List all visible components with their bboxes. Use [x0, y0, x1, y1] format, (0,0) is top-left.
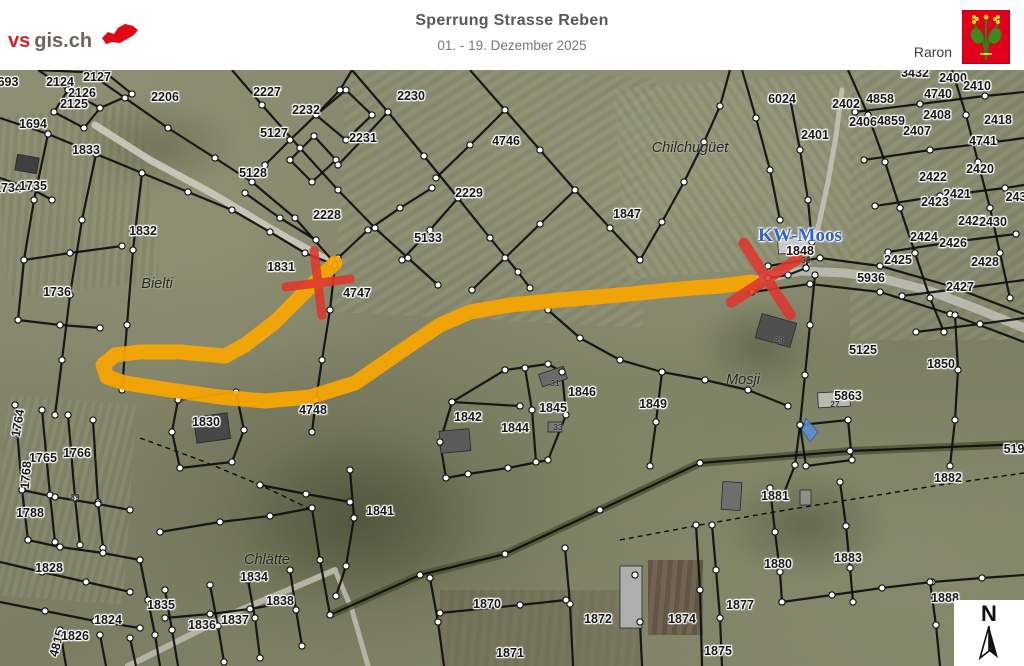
building-number-label: 33: [553, 422, 562, 432]
parcel-number-label: 1835: [147, 598, 175, 612]
parcel-number-label: 1831: [267, 260, 295, 274]
parcel-number-label: 4748: [299, 403, 327, 417]
place-name-label: Bielti: [141, 276, 172, 292]
parcel-number-label: 1880: [764, 557, 792, 571]
parcel-number-label: 5127: [260, 126, 288, 140]
parcel-number-label: 5128: [239, 166, 267, 180]
parcel-number-label: 1870: [473, 597, 501, 611]
parcel-number-label: 2410: [963, 79, 991, 93]
parcel-number-label: 1882: [934, 471, 962, 485]
parcel-number-label: 693: [0, 75, 18, 89]
cadastral-layer: [0, 70, 1024, 666]
parcel-number-label: 2425: [884, 253, 912, 267]
parcel-number-label: 519: [1004, 442, 1024, 456]
parcel-number-label: 1735: [19, 179, 47, 193]
parcel-number-label: 1883: [834, 551, 862, 565]
parcel-number-label: 1837: [221, 613, 249, 627]
parcel-number-label: 1845: [539, 401, 567, 415]
parcel-number-label: 2422: [919, 170, 947, 184]
building-number-label: 27: [830, 399, 839, 409]
parcel-number-label: 1833: [72, 143, 100, 157]
parcel-number-label: 2402: [832, 97, 860, 111]
parcel-number-label: 4740: [924, 87, 952, 101]
parcel-number-label: 2408: [923, 108, 951, 122]
building-number-label: 29: [774, 335, 783, 345]
parcel-number-label: 1788: [16, 506, 44, 520]
parcel-number-label: 2127: [83, 70, 111, 84]
parcel-number-label: 2230: [397, 89, 425, 103]
page-title: Sperrung Strasse Reben: [0, 12, 1024, 30]
parcel-number-label: 1844: [501, 421, 529, 435]
parcel-number-label: 1846: [568, 385, 596, 399]
parcel-number-label: 2406: [849, 115, 877, 129]
parcel-number-label: 1838: [266, 594, 294, 608]
parcel-number-label: 1830: [192, 415, 220, 429]
parcel-number-label: 4859: [877, 114, 905, 128]
header-bar: vsgis.ch Sperrung Strasse Reben 01. - 19…: [0, 0, 1024, 70]
parcel-number-label: 1877: [726, 598, 754, 612]
parcel-number-label: 1836: [188, 618, 216, 632]
parcel-number-label: 2424: [910, 230, 938, 244]
parcel-number-label: 1847: [613, 207, 641, 221]
north-arrow-box: N: [954, 600, 1024, 666]
kw-moos-label: KW-Moos: [758, 225, 842, 247]
parcel-number-label: 5133: [414, 231, 442, 245]
parcel-number-label: 1834: [240, 570, 268, 584]
parcel-number-label: 5936: [857, 271, 885, 285]
parcel-number-label: 2401: [801, 128, 829, 142]
parcel-number-label: 2426: [939, 236, 967, 250]
parcel-number-label: 1850: [927, 357, 955, 371]
title-block: Sperrung Strasse Reben 01. - 19. Dezembe…: [0, 12, 1024, 53]
parcel-number-label: 4858: [866, 92, 894, 106]
north-label: N: [981, 604, 997, 624]
parcel-number-label: 1694: [19, 117, 47, 131]
parcel-number-label: 2227: [253, 85, 281, 99]
parcel-number-label: 1768: [18, 461, 34, 490]
parcel-number-label: 1832: [129, 224, 157, 238]
building-number-label: 30: [801, 255, 810, 265]
parcel-number-label: 1842: [454, 410, 482, 424]
parcel-number-label: 2427: [946, 280, 974, 294]
place-name-label: Chlätte: [244, 552, 290, 568]
parcel-number-label: 2125: [60, 97, 88, 111]
north-arrow-icon: [974, 624, 1004, 662]
place-name-label: Chilchugüet: [652, 140, 729, 156]
parcel-number-label: 2229: [455, 186, 483, 200]
parcel-number-label: 1736: [43, 285, 71, 299]
parcel-number-label: 2428: [971, 255, 999, 269]
map-viewport[interactable]: 6932124212721262125169418332206222722325…: [0, 70, 1024, 666]
building-number-label: 31: [550, 378, 559, 388]
parcel-number-label: 1871: [496, 646, 524, 660]
parcel-number-label: 1824: [94, 613, 122, 627]
parcel-number-label: 3432: [901, 70, 929, 80]
parcel-number-label: 1826: [61, 629, 89, 643]
parcel-number-label: 2430: [979, 215, 1007, 229]
parcel-number-label: 4741: [969, 134, 997, 148]
parcel-number-label: 2206: [151, 90, 179, 104]
parcel-number-label: 243: [1006, 190, 1024, 204]
parcel-number-label: 4746: [492, 134, 520, 148]
parcel-number-label: 5125: [849, 343, 877, 357]
parcel-number-label: 1841: [366, 504, 394, 518]
parcel-number-label: 1875: [704, 644, 732, 658]
parcel-number-label: 2418: [984, 113, 1012, 127]
parcel-number-label: 6024: [768, 92, 796, 106]
parcel-number-label: 2423: [921, 195, 949, 209]
parcel-number-label: 2228: [313, 208, 341, 222]
parcel-number-label: 1874: [668, 612, 696, 626]
parcel-number-label: 2420: [966, 162, 994, 176]
parcel-number-label: 2232: [292, 103, 320, 117]
building-number-label: 39: [70, 492, 79, 502]
parcel-number-label: 1881: [761, 489, 789, 503]
page-subtitle: 01. - 19. Dezember 2025: [0, 38, 1024, 53]
parcel-number-label: 1872: [584, 612, 612, 626]
parcel-number-label: 2231: [349, 131, 377, 145]
parcel-number-label: 1766: [63, 446, 91, 460]
parcel-number-label: 4747: [343, 286, 371, 300]
place-name-label: Mosji: [726, 372, 760, 388]
parcel-number-label: 2407: [903, 124, 931, 138]
municipality-label: Raron: [914, 44, 952, 60]
raron-coat-of-arms: [962, 10, 1010, 64]
parcel-number-label: 1849: [639, 397, 667, 411]
parcel-number-label: 1828: [35, 561, 63, 575]
